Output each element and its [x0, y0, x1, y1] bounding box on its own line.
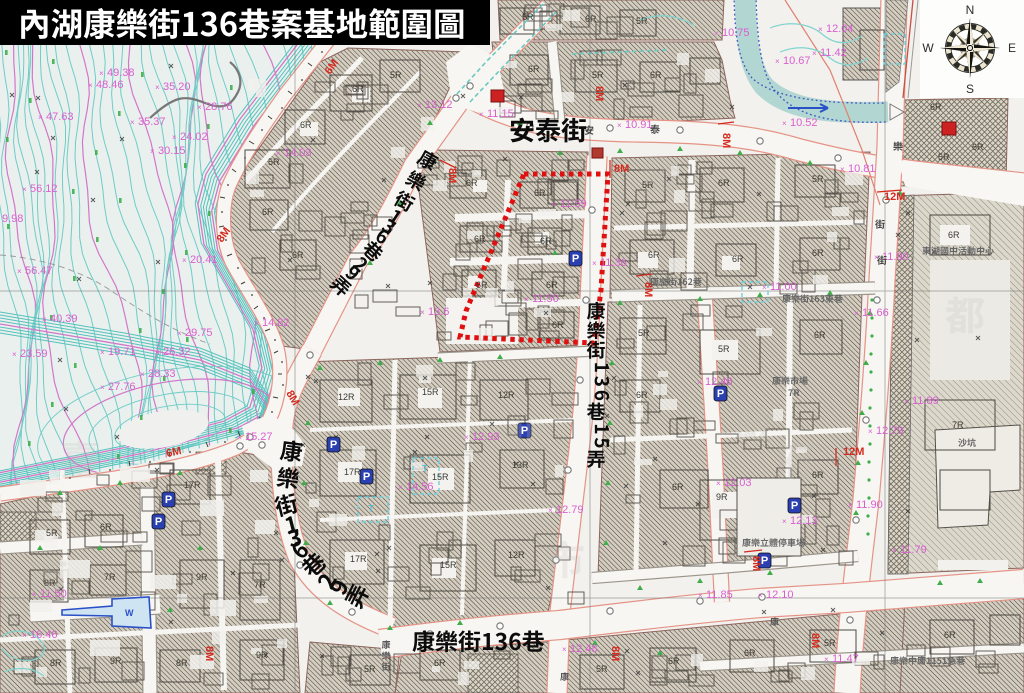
- svg-text:11.00: 11.00: [770, 281, 797, 293]
- svg-text:5R: 5R: [364, 664, 376, 674]
- svg-text:×: ×: [150, 147, 155, 156]
- svg-text:6R: 6R: [534, 188, 546, 198]
- svg-text:×: ×: [762, 283, 767, 292]
- svg-text:×: ×: [479, 110, 484, 119]
- svg-text:×: ×: [812, 49, 817, 58]
- svg-text:×: ×: [848, 501, 853, 510]
- svg-text:11.89: 11.89: [912, 395, 939, 407]
- svg-text:6R: 6R: [292, 250, 304, 260]
- svg-text:11.42: 11.42: [820, 47, 847, 59]
- svg-text:11.36: 11.36: [600, 257, 627, 269]
- svg-text:6R: 6R: [585, 14, 597, 24]
- svg-text:7R: 7R: [254, 580, 266, 590]
- svg-text:6R: 6R: [476, 280, 488, 290]
- svg-text:12.48: 12.48: [570, 643, 598, 655]
- svg-text:×: ×: [698, 591, 703, 600]
- svg-text:×: ×: [88, 81, 93, 90]
- svg-text:6R: 6R: [744, 648, 756, 658]
- svg-text:6R: 6R: [812, 470, 824, 480]
- svg-text:13.12: 13.12: [425, 99, 453, 111]
- svg-text:5R: 5R: [522, 12, 534, 22]
- svg-text:35.20: 35.20: [163, 81, 191, 93]
- svg-text:14.82: 14.82: [262, 317, 290, 329]
- svg-text:8R: 8R: [176, 658, 188, 668]
- svg-text:10.67: 10.67: [783, 55, 811, 67]
- svg-text:×: ×: [197, 103, 202, 112]
- svg-text:16.46: 16.46: [30, 629, 58, 641]
- svg-text:8M: 8M: [593, 86, 605, 101]
- svg-text:×: ×: [417, 101, 422, 110]
- svg-text:×: ×: [562, 645, 567, 654]
- svg-text:10.91: 10.91: [625, 119, 653, 131]
- svg-text:27.76: 27.76: [108, 381, 136, 393]
- svg-text:×: ×: [758, 591, 763, 600]
- svg-text:5R: 5R: [596, 664, 608, 674]
- svg-text:P: P: [165, 494, 172, 506]
- svg-text:×: ×: [775, 57, 780, 66]
- svg-text:S: S: [966, 82, 974, 96]
- svg-text:6R: 6R: [930, 102, 942, 112]
- svg-text:11.85: 11.85: [706, 589, 733, 601]
- svg-text:6R: 6R: [352, 84, 364, 94]
- svg-text:9R: 9R: [110, 656, 122, 666]
- svg-text:×: ×: [155, 83, 160, 92]
- svg-text:6R: 6R: [948, 230, 960, 240]
- svg-text:15.27: 15.27: [245, 431, 273, 443]
- svg-text:40.39: 40.39: [50, 313, 78, 325]
- svg-text:×: ×: [398, 483, 403, 492]
- svg-text:6R: 6R: [100, 522, 112, 532]
- svg-text:×: ×: [840, 165, 845, 174]
- svg-text:28.76: 28.76: [205, 101, 233, 113]
- svg-text:5R: 5R: [812, 174, 824, 184]
- svg-text:48.46: 48.46: [96, 79, 124, 91]
- svg-text:×: ×: [22, 185, 27, 194]
- svg-text:×: ×: [130, 118, 135, 127]
- svg-text:12.13: 12.13: [790, 515, 818, 527]
- svg-text:6R: 6R: [732, 254, 744, 264]
- svg-text:30.15: 30.15: [158, 145, 186, 157]
- svg-text:6R: 6R: [636, 390, 648, 400]
- svg-text:13.6: 13.6: [428, 306, 449, 318]
- svg-text:8M: 8M: [609, 646, 621, 661]
- svg-text:E: E: [1008, 41, 1016, 55]
- svg-text:26.32: 26.32: [163, 346, 191, 358]
- svg-text:12M: 12M: [843, 446, 864, 458]
- svg-text:×: ×: [420, 308, 425, 317]
- svg-text:10.75: 10.75: [722, 27, 750, 39]
- svg-text:6R: 6R: [812, 248, 824, 258]
- svg-text:×: ×: [12, 350, 17, 359]
- svg-text:29.75: 29.75: [185, 327, 213, 339]
- svg-text:5R: 5R: [636, 16, 648, 26]
- svg-text:×: ×: [155, 348, 160, 357]
- svg-text:9R: 9R: [256, 650, 268, 660]
- svg-text:5R: 5R: [592, 70, 604, 80]
- svg-text:×: ×: [892, 546, 897, 555]
- svg-text:12R: 12R: [498, 390, 515, 400]
- svg-text:12R: 12R: [508, 550, 525, 560]
- svg-text:49.38: 49.38: [107, 67, 135, 79]
- svg-text:17R: 17R: [184, 480, 201, 490]
- svg-text:8M: 8M: [446, 168, 458, 183]
- svg-text:×: ×: [177, 329, 182, 338]
- svg-text:×: ×: [592, 259, 597, 268]
- svg-text:5R: 5R: [718, 344, 730, 354]
- svg-text:8M: 8M: [750, 556, 762, 571]
- svg-text:5R: 5R: [46, 528, 58, 538]
- svg-text:×: ×: [38, 113, 43, 122]
- svg-text:11.66: 11.66: [862, 307, 889, 319]
- svg-text:×: ×: [182, 256, 187, 265]
- svg-text:12.03: 12.03: [724, 477, 752, 489]
- svg-text:6R: 6R: [648, 250, 660, 260]
- svg-text:12.46: 12.46: [705, 376, 733, 388]
- svg-text:P: P: [330, 439, 337, 451]
- svg-text:12.10: 12.10: [766, 589, 794, 601]
- svg-text:14.56: 14.56: [406, 481, 434, 493]
- svg-text:×: ×: [548, 506, 553, 515]
- svg-text:×: ×: [237, 433, 242, 442]
- svg-text:W: W: [922, 41, 934, 55]
- svg-text:15R: 15R: [432, 472, 449, 482]
- svg-text:×: ×: [617, 121, 622, 130]
- svg-text:P: P: [791, 500, 798, 512]
- svg-text:×: ×: [552, 200, 557, 209]
- svg-text:P: P: [717, 388, 724, 400]
- svg-text:47.63: 47.63: [46, 111, 74, 123]
- svg-text:11.59: 11.59: [560, 198, 587, 210]
- svg-text:×: ×: [714, 29, 719, 38]
- svg-text:6R: 6R: [672, 482, 684, 492]
- svg-text:×: ×: [99, 69, 104, 78]
- svg-text:W: W: [125, 608, 134, 618]
- svg-text:×: ×: [42, 315, 47, 324]
- svg-text:×: ×: [100, 348, 105, 357]
- svg-text:6R: 6R: [262, 207, 274, 217]
- svg-text:×: ×: [716, 479, 721, 488]
- svg-text:9R: 9R: [716, 492, 728, 502]
- svg-text:N: N: [966, 3, 975, 17]
- svg-text:12.04: 12.04: [826, 23, 854, 35]
- svg-text:5R: 5R: [638, 328, 650, 338]
- svg-text:23.59: 23.59: [20, 348, 48, 360]
- svg-text:13R: 13R: [512, 460, 529, 470]
- svg-text:×: ×: [22, 631, 27, 640]
- svg-text:5R: 5R: [390, 70, 402, 80]
- svg-text:T: T: [368, 504, 374, 515]
- svg-text:6R: 6R: [474, 234, 486, 244]
- svg-text:9R: 9R: [196, 572, 208, 582]
- svg-text:15R: 15R: [422, 387, 439, 397]
- svg-text:6R: 6R: [466, 178, 478, 188]
- svg-text:12R: 12R: [338, 392, 355, 402]
- svg-text:×: ×: [868, 427, 873, 436]
- svg-text:8M: 8M: [614, 163, 629, 175]
- svg-text:×: ×: [140, 370, 145, 379]
- svg-text:×: ×: [818, 25, 823, 34]
- svg-text:17R: 17R: [350, 554, 367, 564]
- svg-text:7R: 7R: [952, 420, 964, 430]
- svg-text:6R: 6R: [814, 330, 826, 340]
- svg-text:12.79: 12.79: [556, 504, 584, 516]
- svg-text:12.79: 12.79: [876, 425, 904, 437]
- svg-text:×: ×: [254, 319, 259, 328]
- svg-text:6R: 6R: [540, 236, 552, 246]
- svg-text:56.12: 56.12: [30, 183, 58, 195]
- svg-text:28.33: 28.33: [148, 368, 176, 380]
- svg-text:24.02: 24.02: [180, 131, 208, 143]
- svg-text:56.47: 56.47: [25, 265, 53, 277]
- svg-text:8M: 8M: [203, 646, 215, 661]
- svg-text:×: ×: [100, 383, 105, 392]
- svg-text:14.03: 14.03: [284, 147, 312, 159]
- svg-text:17R: 17R: [344, 467, 361, 477]
- svg-text:5R: 5R: [938, 152, 950, 162]
- svg-text:6R: 6R: [650, 70, 662, 80]
- svg-text:P: P: [363, 471, 370, 483]
- svg-text:×: ×: [17, 267, 22, 276]
- svg-text:11.50: 11.50: [532, 293, 559, 305]
- svg-text:5R: 5R: [268, 157, 280, 167]
- svg-text:6R: 6R: [434, 658, 446, 668]
- svg-text:×: ×: [904, 397, 909, 406]
- svg-text:×: ×: [854, 309, 859, 318]
- svg-text:12M: 12M: [884, 191, 905, 203]
- svg-text:6R: 6R: [528, 64, 540, 74]
- svg-text:8R: 8R: [50, 658, 62, 668]
- svg-text:11.79: 11.79: [900, 544, 927, 556]
- svg-text:×: ×: [697, 378, 702, 387]
- svg-text:6R: 6R: [300, 120, 312, 130]
- svg-text:T: T: [422, 464, 428, 475]
- svg-text:35.37: 35.37: [138, 116, 166, 128]
- svg-text:10.81: 10.81: [848, 163, 876, 175]
- svg-text:×: ×: [464, 433, 469, 442]
- svg-text:11.47: 11.47: [832, 653, 859, 665]
- svg-text:9.98: 9.98: [2, 213, 23, 225]
- svg-text:11.15: 11.15: [487, 108, 514, 120]
- svg-text:6R: 6R: [552, 320, 564, 330]
- svg-text:P: P: [572, 253, 579, 265]
- svg-text:15R: 15R: [440, 560, 457, 570]
- svg-text:×: ×: [32, 590, 37, 599]
- svg-text:7R: 7R: [104, 572, 116, 582]
- svg-text:×: ×: [824, 655, 829, 664]
- svg-text:8M: 8M: [809, 633, 821, 648]
- svg-text:10.52: 10.52: [790, 117, 818, 129]
- svg-text:8M: 8M: [720, 133, 732, 148]
- svg-text:20.41: 20.41: [190, 254, 218, 266]
- svg-text:×: ×: [782, 119, 787, 128]
- svg-text:×: ×: [782, 517, 787, 526]
- svg-text:6R: 6R: [546, 280, 558, 290]
- svg-text:11.50: 11.50: [40, 588, 67, 600]
- svg-text:×: ×: [524, 295, 529, 304]
- svg-text:5R: 5R: [824, 638, 836, 648]
- svg-text:6R: 6R: [718, 178, 730, 188]
- svg-text:11.90: 11.90: [856, 499, 883, 511]
- svg-text:6R: 6R: [944, 630, 956, 640]
- svg-text:6R: 6R: [972, 142, 984, 152]
- svg-text:P: P: [155, 516, 162, 528]
- svg-text:×: ×: [172, 133, 177, 142]
- svg-text:19.71: 19.71: [108, 346, 136, 358]
- svg-text:6R: 6R: [668, 656, 680, 666]
- svg-text:12.93: 12.93: [472, 431, 500, 443]
